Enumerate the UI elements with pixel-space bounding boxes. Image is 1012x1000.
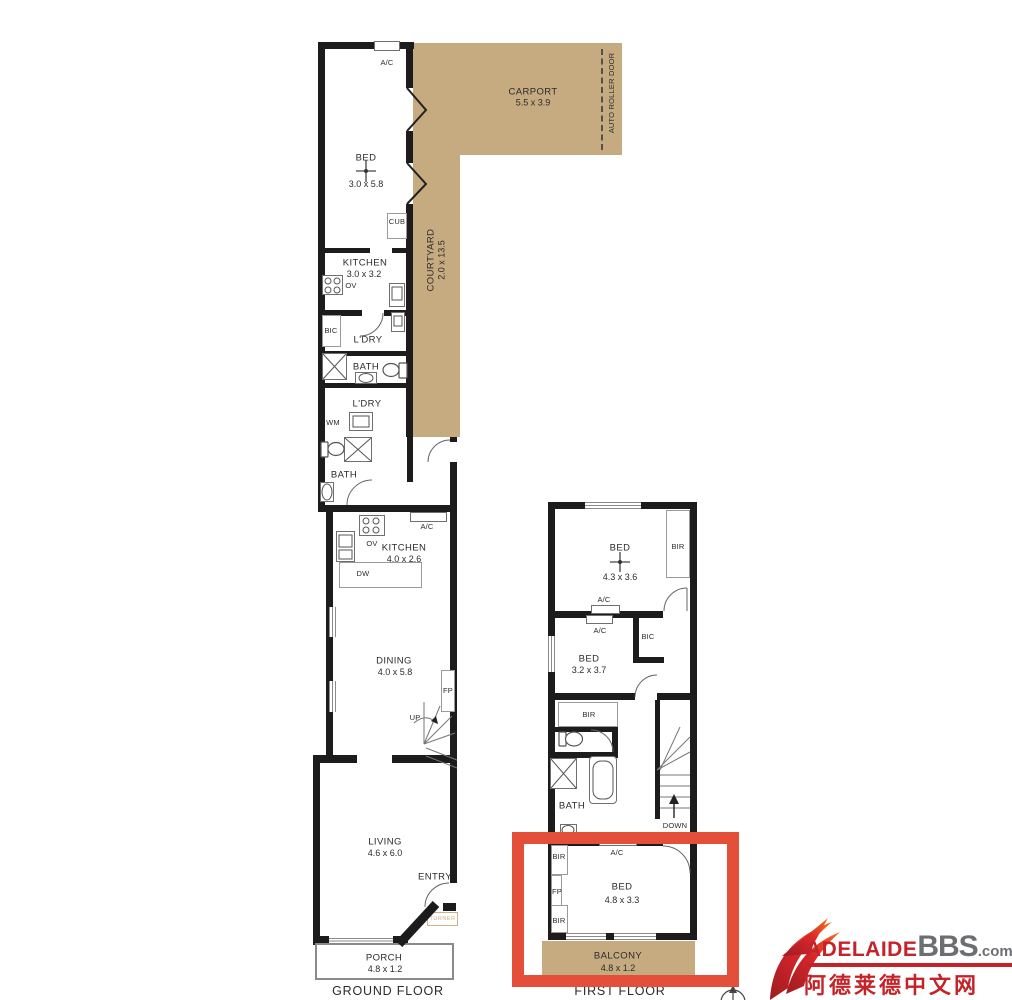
cooktop bbox=[322, 275, 343, 295]
room-label-bed: BED bbox=[356, 153, 377, 164]
laundry-sink bbox=[391, 312, 405, 332]
logo-bbs-text: BBS bbox=[917, 930, 977, 964]
wall bbox=[318, 248, 370, 253]
roller-door-label: AUTO ROLLER DOOR bbox=[608, 53, 616, 134]
wm-label: WM bbox=[326, 419, 340, 427]
oven-label: OV bbox=[345, 282, 356, 290]
ground-floor-caption: GROUND FLOOR bbox=[332, 984, 444, 998]
wall bbox=[548, 693, 635, 700]
wall bbox=[450, 437, 457, 442]
room-dims-living: 4.6 x 6.0 bbox=[368, 848, 403, 858]
wall bbox=[548, 502, 555, 636]
wall bbox=[392, 755, 457, 763]
room-dims-bed1: 4.3 x 3.6 bbox=[603, 572, 638, 582]
logo-underline bbox=[806, 963, 1012, 967]
room-dims-kitchen2: 4.0 x 2.6 bbox=[387, 554, 422, 564]
kitchen-sink bbox=[336, 531, 355, 562]
entry-label: ENTRY bbox=[418, 872, 452, 883]
room-label-bath2: BATH bbox=[331, 470, 357, 481]
room-label-ldry2: L'DRY bbox=[353, 399, 382, 410]
wall bbox=[407, 437, 413, 482]
shower bbox=[550, 758, 577, 789]
window bbox=[548, 636, 555, 672]
room-label-dining: DINING bbox=[376, 656, 412, 667]
room-label-kitchen2: KITCHEN bbox=[382, 543, 427, 554]
room-label-bed1: BED bbox=[610, 543, 631, 554]
bathtub bbox=[589, 756, 617, 804]
window bbox=[329, 607, 336, 637]
room-dims-bed: 3.0 x 5.8 bbox=[349, 179, 384, 189]
compass-icon bbox=[721, 985, 745, 1000]
room-dims-bed2: 3.2 x 3.7 bbox=[572, 665, 607, 675]
ac-unit bbox=[591, 605, 620, 614]
logo-adelaide-text: ADELAIDE bbox=[806, 938, 917, 962]
room-dims-dining: 4.0 x 5.8 bbox=[378, 667, 413, 677]
shower bbox=[322, 353, 347, 380]
basin bbox=[320, 482, 334, 502]
wall bbox=[406, 131, 413, 163]
room-label-ldry1: L'DRY bbox=[354, 335, 383, 346]
turner-logo-box: TURNER bbox=[427, 912, 458, 926]
floorplan-canvas: TURNER A/C BED 3.0 x 5.8 CARPORT 5.5 x 3… bbox=[0, 0, 1012, 1000]
wall bbox=[633, 657, 664, 663]
logo-brand-text: ADELAIDEBBS.com bbox=[806, 930, 1012, 964]
wall bbox=[313, 755, 320, 943]
cooktop bbox=[359, 515, 385, 536]
cub-label: CUB bbox=[389, 218, 405, 226]
wall bbox=[392, 248, 413, 253]
logo-chinese-tagline: 阿德莱德中文网 bbox=[804, 968, 979, 1000]
window bbox=[329, 681, 336, 712]
ac-label: A/C bbox=[593, 627, 606, 635]
laundry-sink bbox=[349, 412, 373, 431]
roller-door-dashed-line bbox=[601, 49, 603, 150]
room-dims-porch: 4.8 x 1.2 bbox=[368, 964, 403, 974]
room-label-porch: PORCH bbox=[366, 953, 402, 964]
stairs-down-icon bbox=[657, 727, 690, 818]
ceiling-fan-icon bbox=[610, 552, 630, 572]
ac-label: A/C bbox=[380, 59, 393, 67]
window bbox=[585, 502, 641, 509]
wall bbox=[657, 693, 690, 700]
bic-label: BIC bbox=[641, 633, 654, 641]
bic-label: BIC bbox=[324, 327, 337, 335]
room-label-living: LIVING bbox=[368, 837, 402, 848]
bir-label: BIR bbox=[582, 711, 595, 719]
stairs-down-label: DOWN bbox=[663, 822, 688, 830]
bir-label: BIR bbox=[671, 543, 684, 551]
turner-logo-text: TURNER bbox=[430, 916, 456, 922]
ac-unit bbox=[586, 615, 613, 624]
room-dims-kitchen1: 3.0 x 3.2 bbox=[347, 269, 382, 279]
vanity bbox=[355, 372, 377, 384]
wall bbox=[641, 502, 697, 509]
wall bbox=[406, 204, 413, 437]
wall bbox=[548, 727, 618, 732]
shower bbox=[344, 437, 372, 462]
oven-label: OV bbox=[366, 540, 377, 548]
wall bbox=[443, 903, 456, 911]
stairs-up-label: UP bbox=[410, 714, 421, 722]
wall bbox=[655, 700, 660, 819]
ac-unit bbox=[374, 41, 400, 51]
room-label-carport: CARPORT 5.5 x 3.9 bbox=[508, 87, 557, 108]
ac-unit bbox=[410, 512, 447, 522]
fireplace-label: FP bbox=[443, 687, 453, 695]
room-label-bed2: BED bbox=[579, 654, 600, 665]
logo-com-text: .com bbox=[978, 943, 1012, 960]
wall bbox=[318, 505, 457, 512]
kitchen-bench bbox=[339, 562, 422, 588]
door-arc bbox=[347, 313, 690, 907]
highlight-annotation-box bbox=[512, 832, 739, 987]
room-label-kitchen1: KITCHEN bbox=[343, 258, 388, 269]
kitchen-sink bbox=[389, 283, 405, 307]
wall bbox=[612, 727, 618, 753]
ac-label: A/C bbox=[597, 596, 610, 604]
dishwasher-label: DW bbox=[357, 570, 370, 578]
room-label-bath: BATH bbox=[559, 801, 585, 812]
room-label-courtyard: COURTYARD 2.0 x 13.5 bbox=[426, 229, 447, 292]
room-label-bath1: BATH bbox=[353, 362, 379, 373]
ac-label: A/C bbox=[420, 523, 433, 531]
wall bbox=[406, 42, 413, 88]
